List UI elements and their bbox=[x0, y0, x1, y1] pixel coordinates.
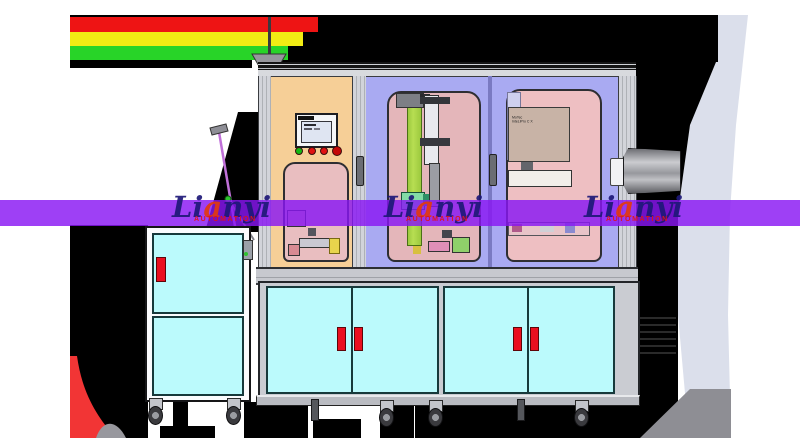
stop-button bbox=[308, 147, 316, 155]
green-fixture bbox=[452, 237, 470, 253]
lower-handle-1 bbox=[337, 327, 346, 351]
side-indicator bbox=[244, 252, 248, 256]
lower-handle-2 bbox=[354, 327, 363, 351]
side-fitting bbox=[243, 240, 253, 260]
caster-wheel bbox=[146, 398, 164, 426]
hmi-top-strip bbox=[298, 116, 314, 120]
side-cylinder bbox=[623, 148, 681, 194]
watermark-logo: Lianyi AUTOMATION bbox=[584, 194, 714, 223]
door-handle-right bbox=[489, 154, 497, 186]
caster-wheel bbox=[377, 400, 395, 428]
hmi-panel bbox=[295, 113, 338, 148]
caster-wheel bbox=[426, 400, 444, 428]
equipment-plate: MoTec InteLiPro C X bbox=[508, 107, 570, 162]
dark-fixture bbox=[442, 230, 452, 238]
lower-handle-3 bbox=[513, 327, 522, 351]
machine-render-scene: MoTec InteLiPro C X Lianyi AUTOMATION Li… bbox=[0, 0, 800, 438]
sensor-bit bbox=[308, 228, 316, 236]
watermark-logo: Lianyi AUTOMATION bbox=[172, 194, 302, 223]
side-door-bottom bbox=[152, 316, 244, 396]
gripper-bolt-top bbox=[420, 97, 450, 104]
pink-fixture bbox=[428, 241, 450, 252]
start-button bbox=[295, 147, 303, 155]
frame-top-bar bbox=[258, 62, 636, 70]
signal-tower-light bbox=[70, 15, 318, 68]
plate-label: MoTec InteLiPro C X bbox=[512, 116, 533, 124]
spindle-block bbox=[610, 158, 625, 186]
lower-handle-4 bbox=[530, 327, 539, 351]
door-handle-center bbox=[356, 156, 364, 186]
caster-wheel bbox=[572, 400, 590, 428]
leveling-foot bbox=[311, 399, 319, 421]
watermark-logo: Lianyi AUTOMATION bbox=[384, 194, 514, 223]
pink-fitting bbox=[288, 244, 300, 256]
gripper-bolt-mid bbox=[420, 138, 450, 146]
brand-subtitle: AUTOMATION bbox=[606, 216, 714, 223]
leveling-foot bbox=[517, 399, 525, 421]
brand-subtitle: AUTOMATION bbox=[406, 216, 514, 223]
linear-rail bbox=[424, 95, 439, 165]
reset-button bbox=[320, 147, 328, 155]
caster-wheel bbox=[224, 398, 242, 426]
hmi-screen bbox=[301, 121, 332, 143]
yellow-block bbox=[329, 238, 340, 254]
side-door-handle bbox=[156, 257, 166, 282]
white-beam bbox=[508, 170, 572, 187]
emergency-stop-button bbox=[332, 146, 342, 156]
lower-door-2 bbox=[351, 286, 439, 394]
lower-door-4 bbox=[527, 286, 615, 394]
yellow-fixture bbox=[413, 246, 421, 254]
brand-subtitle: AUTOMATION bbox=[194, 216, 302, 223]
